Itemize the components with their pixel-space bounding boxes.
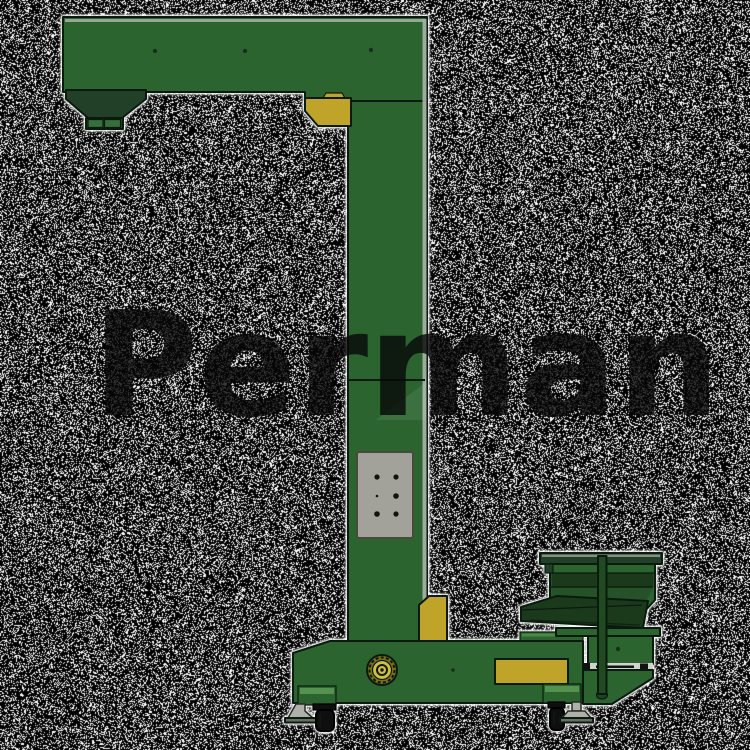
bolt-dot [243,49,247,53]
hopper-bottom-box [583,670,653,704]
bolt-dot [153,49,157,53]
bolt-dot [369,48,373,52]
infeed-chute [521,596,648,628]
discharge-hopper [66,90,146,129]
yellow-corner-bracket [305,93,351,126]
left-caster-wheel [313,704,336,731]
access-panel [357,452,413,538]
product-image: Perman [0,0,750,750]
watermark-text: Perman [92,293,720,438]
right-caster-wheel [548,702,565,730]
base-frame [293,632,583,705]
yellow-foot-wedge [419,596,447,641]
drive-pulley [367,655,397,685]
top-discharge-boom [63,17,427,101]
discharge-outlet [105,120,121,128]
left-leveling-foot [285,704,316,723]
yellow-base-plate [495,659,568,684]
discharge-outlet [88,120,103,128]
support-rod [597,556,608,699]
